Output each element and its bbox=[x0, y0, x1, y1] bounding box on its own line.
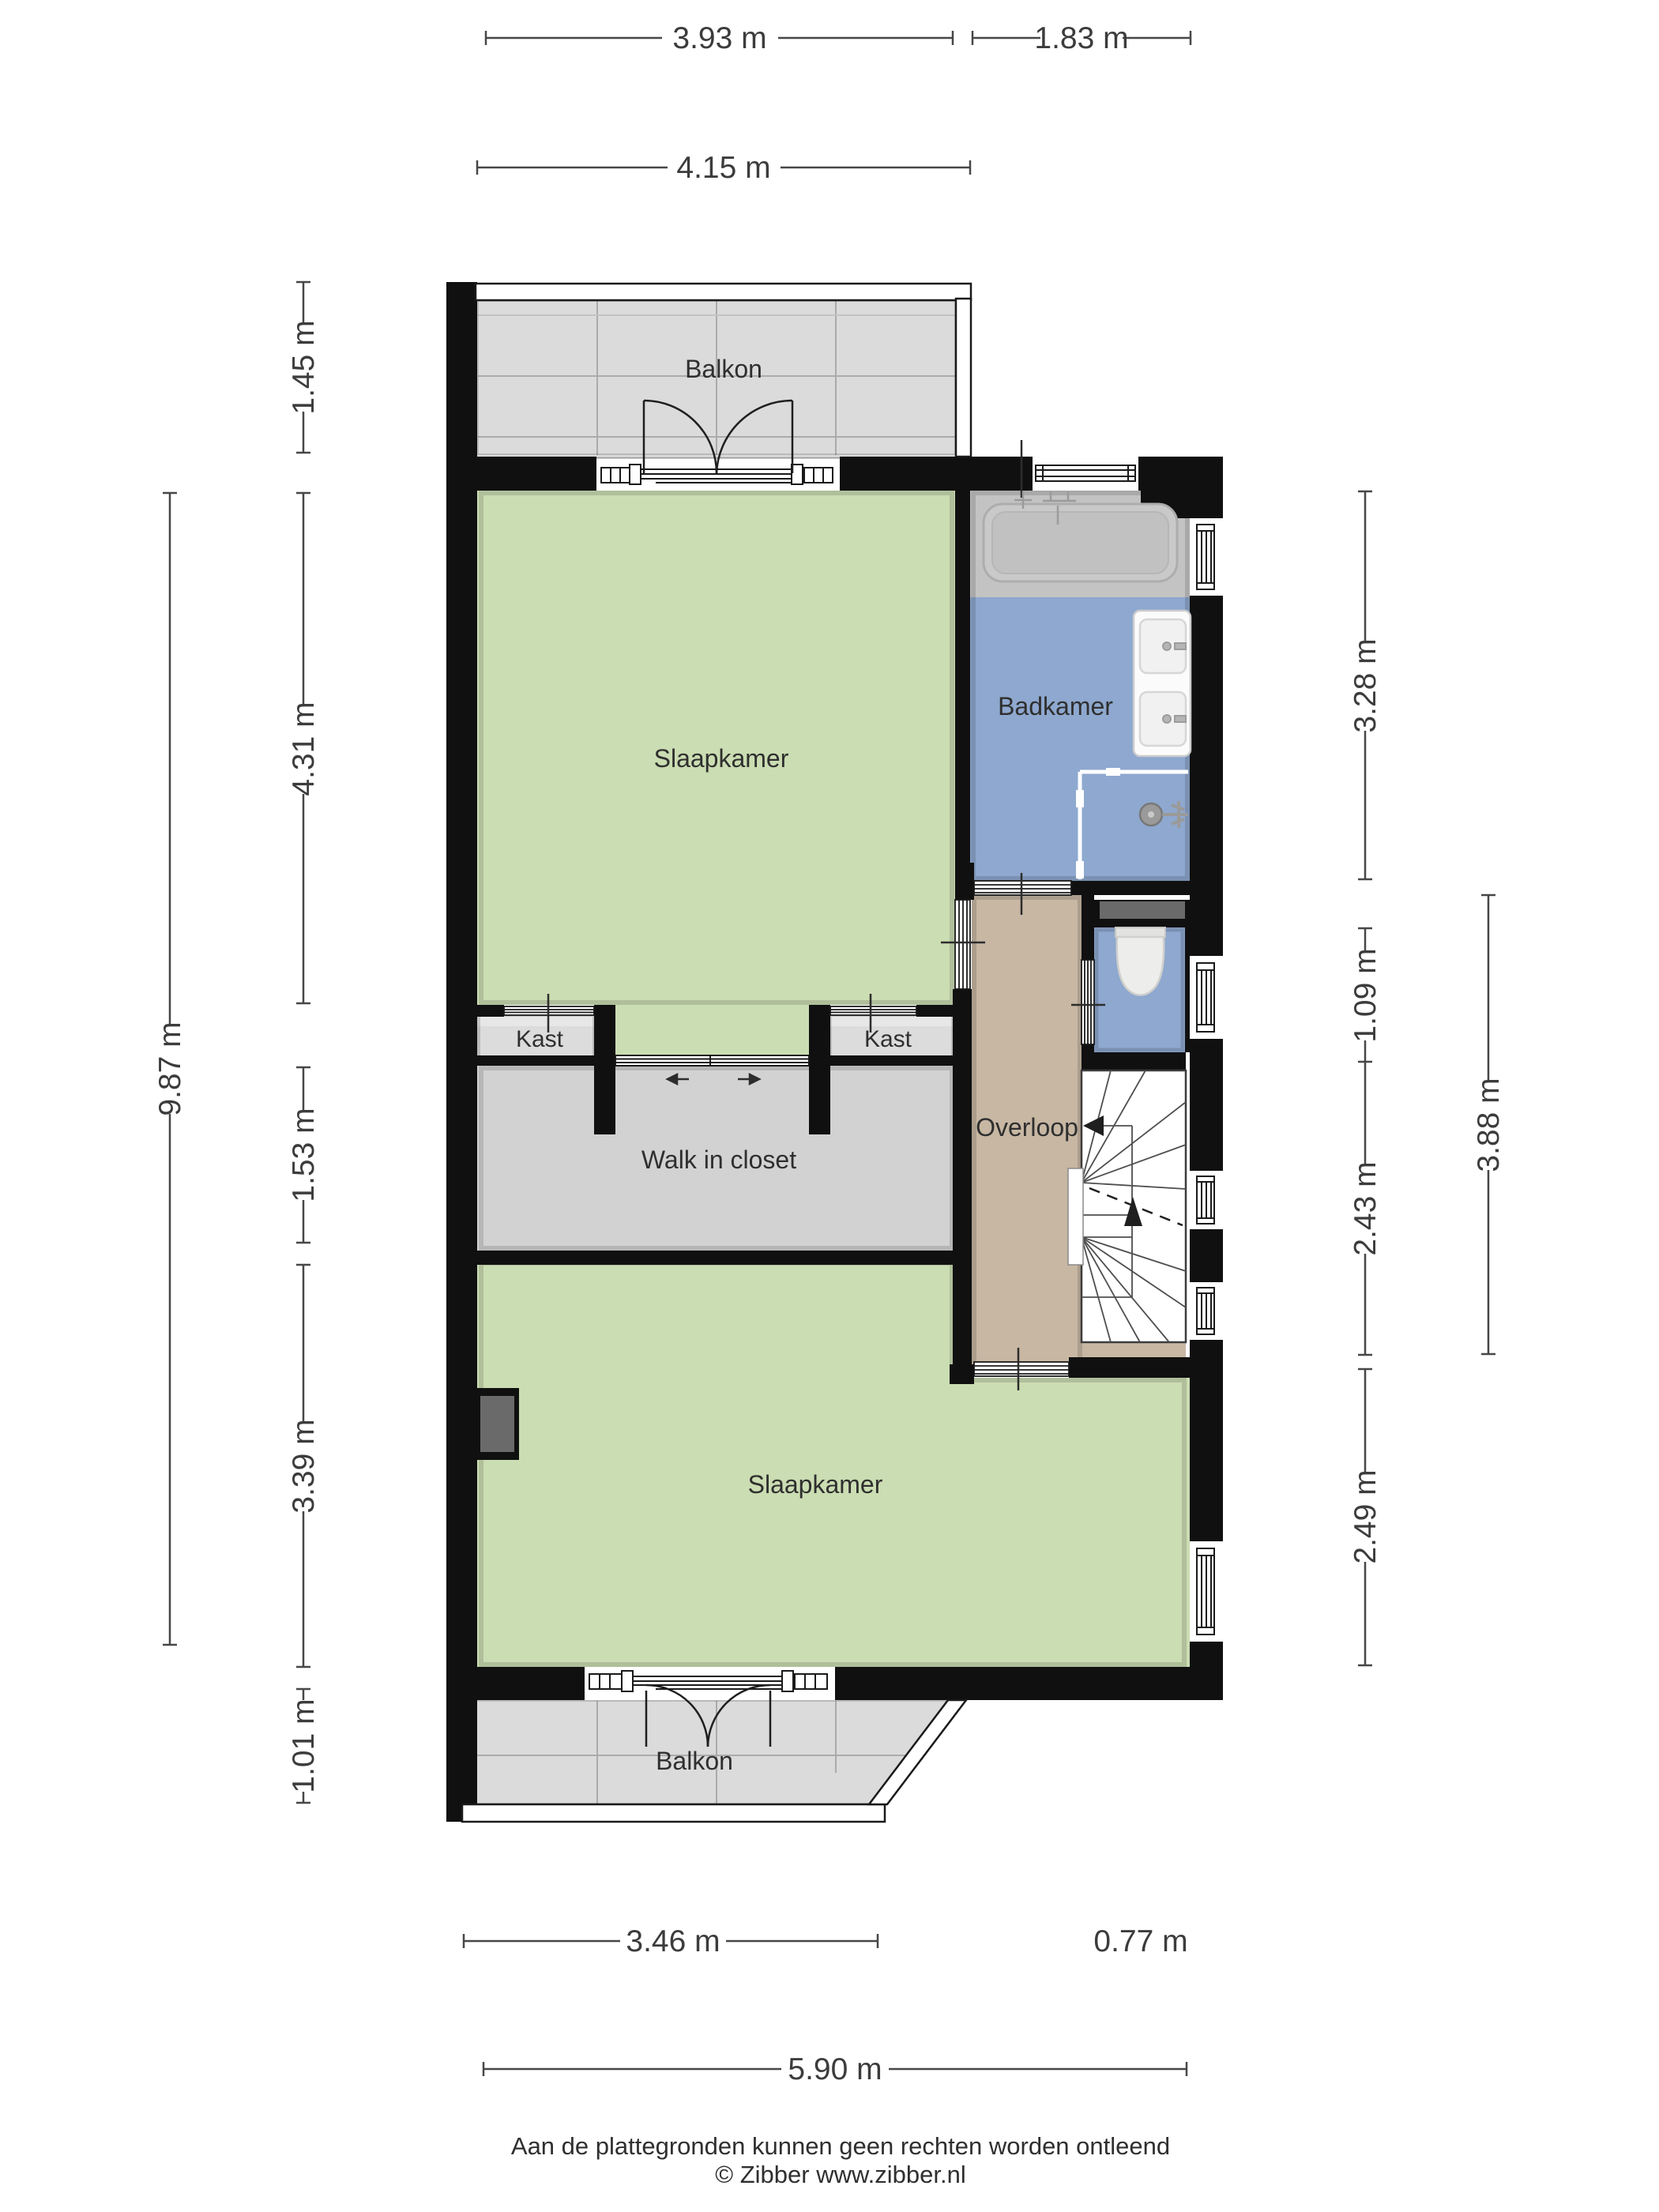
svg-text:Balkon: Balkon bbox=[685, 355, 762, 383]
svg-text:1.45 m: 1.45 m bbox=[287, 320, 321, 414]
svg-text:Slaapkamer: Slaapkamer bbox=[654, 744, 789, 773]
svg-text:1.83 m: 1.83 m bbox=[1034, 21, 1128, 55]
svg-text:4.15 m: 4.15 m bbox=[676, 151, 770, 185]
svg-text:2.49 m: 2.49 m bbox=[1349, 1469, 1382, 1563]
svg-text:© Zibber www.zibber.nl: © Zibber www.zibber.nl bbox=[715, 2161, 965, 2188]
svg-text:Aan de plattegronden kunnen ge: Aan de plattegronden kunnen geen rechten… bbox=[511, 2132, 1170, 2160]
svg-text:Kast: Kast bbox=[864, 1026, 912, 1052]
svg-text:Overloop: Overloop bbox=[976, 1113, 1078, 1142]
svg-text:3.39 m: 3.39 m bbox=[287, 1419, 321, 1513]
svg-text:Badkamer: Badkamer bbox=[998, 692, 1113, 720]
svg-text:3.93 m: 3.93 m bbox=[672, 21, 766, 55]
svg-text:4.31 m: 4.31 m bbox=[287, 702, 321, 796]
svg-text:2.43 m: 2.43 m bbox=[1349, 1161, 1382, 1255]
svg-text:Walk in closet: Walk in closet bbox=[641, 1145, 796, 1174]
svg-text:Slaapkamer: Slaapkamer bbox=[748, 1470, 883, 1499]
svg-text:3.28 m: 3.28 m bbox=[1349, 638, 1382, 732]
svg-text:9.87 m: 9.87 m bbox=[153, 1021, 187, 1115]
svg-text:1.53 m: 1.53 m bbox=[287, 1108, 321, 1202]
svg-text:3.88 m: 3.88 m bbox=[1472, 1078, 1506, 1172]
svg-text:3.46 m: 3.46 m bbox=[626, 1924, 720, 1958]
svg-text:1.09 m: 1.09 m bbox=[1349, 948, 1382, 1042]
svg-text:0.77 m: 0.77 m bbox=[1093, 1924, 1187, 1958]
svg-text:1.01 m: 1.01 m bbox=[287, 1698, 321, 1793]
svg-text:Balkon: Balkon bbox=[656, 1747, 733, 1775]
svg-text:5.90 m: 5.90 m bbox=[788, 2052, 882, 2086]
svg-text:Kast: Kast bbox=[516, 1026, 564, 1052]
